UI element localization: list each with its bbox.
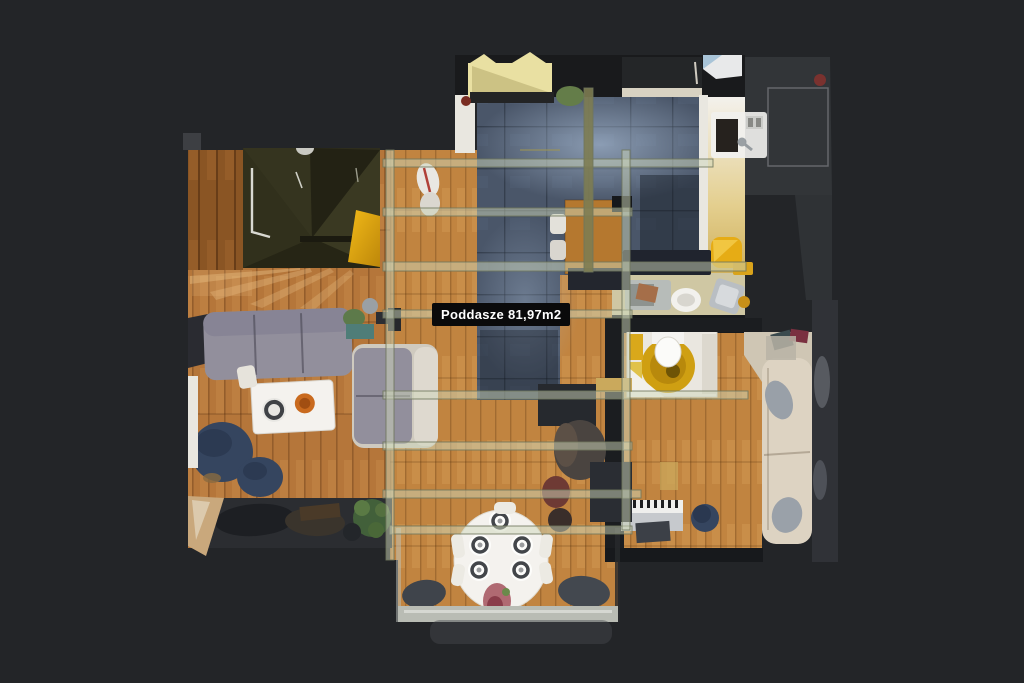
glass-rail-vertical (622, 150, 630, 530)
dark-wardrobe (622, 57, 702, 97)
roof-fragment (183, 133, 201, 150)
gold-handle (738, 296, 750, 308)
glass-beam (390, 526, 632, 534)
olive-beam (584, 88, 593, 272)
floorplan-canvas[interactable] (0, 0, 1024, 683)
piano-bench (635, 521, 670, 543)
white-stool (236, 365, 258, 390)
window-sill (398, 606, 618, 622)
red-object (814, 74, 826, 86)
upper-left-wood-strip (188, 150, 243, 270)
glass-beam (383, 442, 632, 450)
glass-rail-vertical (386, 150, 394, 560)
plant-leaves (556, 86, 584, 106)
coffee-table (251, 380, 336, 434)
wall-segment (605, 548, 763, 562)
viewer-stage: Poddasze 81,97m2 (0, 0, 1024, 683)
toilet-room (627, 331, 717, 397)
window-sill (188, 376, 198, 468)
gray-sofa-main (203, 307, 353, 380)
glass-beam (383, 262, 746, 271)
toilet-bowl (655, 337, 681, 367)
glass-beam (383, 159, 713, 167)
yellow-bottles (629, 334, 643, 360)
glass-beam (383, 391, 748, 399)
bottom-clutter (202, 498, 392, 548)
red-item (461, 96, 471, 106)
floor-area-label[interactable]: Poddasze 81,97m2 (432, 303, 570, 326)
wall-segment (699, 95, 708, 275)
white-chair (550, 214, 566, 234)
glass-beam (383, 490, 641, 498)
balcony-shadow (430, 620, 612, 644)
glass-beam (383, 208, 632, 216)
stairwell-void (243, 148, 380, 268)
wall-segment (622, 318, 762, 332)
